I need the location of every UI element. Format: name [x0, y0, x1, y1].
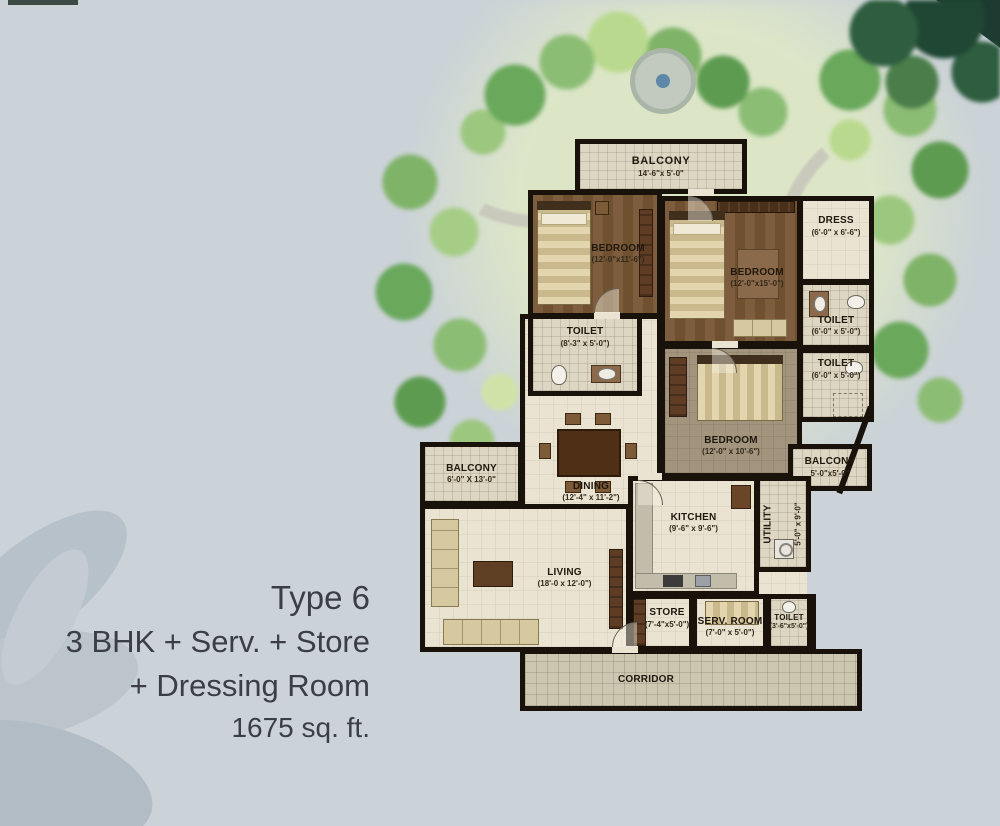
bed-icon: [697, 355, 783, 421]
room-dims: 14'-6"x 5'-0": [638, 169, 684, 179]
chair-icon: [565, 413, 581, 425]
room-label: BEDROOM: [704, 435, 758, 448]
room-serv: SERV. ROOM (7'-0" x 5'-0"): [692, 594, 768, 651]
door-gap: [638, 473, 662, 480]
room-label: TOILET: [774, 613, 804, 623]
room-dims: (6'-0" x 6'-6"): [812, 228, 861, 238]
room-toilet-dress: TOILET (6'-0" x 5'-0"): [798, 280, 874, 350]
room-dims: 6'-0" X 13'-0": [447, 475, 496, 485]
plan-config-line2: + Dressing Room: [60, 664, 370, 708]
room-label: BEDROOM: [591, 243, 645, 256]
sink-icon: [695, 575, 711, 587]
room-dims: (12'-4" x 11'-2"): [562, 493, 619, 503]
room-dims: (7'-0" x 5'-0"): [706, 628, 755, 638]
room-dims: (12'-0" x 10'-6"): [702, 447, 760, 457]
coffee-table-icon: [473, 561, 513, 587]
rug-icon: [737, 249, 779, 299]
room-dress: DRESS (6'-0" x 6'-6"): [798, 196, 874, 284]
door-gap: [712, 341, 738, 348]
sofa-icon: [443, 619, 539, 645]
room-label: KITCHEN: [671, 512, 717, 525]
bed-icon: [537, 201, 591, 305]
room-dims: (12'-0"x11'-6"): [592, 255, 645, 265]
door-gap: [688, 189, 714, 196]
dining-table-icon: [557, 429, 621, 477]
tv-unit-icon: [609, 549, 623, 629]
chair-icon: [595, 481, 611, 493]
room-dims: (7'-4"x5'-0"): [645, 620, 689, 630]
room-toilet-right: TOILET (6'-0" x 5'-0"): [798, 348, 874, 422]
fridge-icon: [731, 485, 751, 509]
room-label: BALCONY: [446, 463, 497, 476]
room-corridor: CORRIDOR: [520, 649, 862, 711]
chair-icon: [565, 481, 581, 493]
floor-plan-page: BALCONY 14'-6"x 5'-0" DINING (12'-4" x 1…: [0, 0, 1000, 826]
door-gap: [594, 312, 620, 319]
washbasin-icon: [591, 365, 621, 383]
room-dims: (8'-3" x 5'-0"): [561, 339, 610, 349]
sofa-icon: [733, 319, 787, 337]
washbasin-icon: [809, 291, 829, 317]
wall-stub: [808, 594, 816, 651]
room-label: DRESS: [818, 215, 853, 228]
room-dims: (18'-0 x 12'-0"): [538, 579, 592, 589]
room-dims: 5'-0" x 9'-0": [793, 502, 803, 545]
nightstand-icon: [595, 201, 609, 215]
room-utility: UTILITY 5'-0" x 9'-0": [755, 476, 811, 572]
bed-icon: [705, 601, 759, 625]
room-dims: (3'-6"x5'-0"): [770, 623, 809, 631]
room-label: STORE: [649, 607, 684, 620]
toilet-icon: [782, 601, 796, 613]
plan-config-line: 3 BHK + Serv. + Store: [60, 620, 370, 664]
room-label: TOILET: [567, 326, 604, 339]
room-label: LIVING: [547, 567, 582, 580]
plan-title-block: Type 6 3 BHK + Serv. + Store + Dressing …: [60, 576, 370, 748]
plan-area: 1675 sq. ft.: [60, 708, 370, 748]
chair-icon: [595, 413, 611, 425]
chair-icon: [539, 443, 551, 459]
shower-icon: [833, 393, 863, 417]
room-label: CORRIDOR: [618, 674, 674, 687]
room-bedroom-1: BEDROOM (12'-0"x11'-6"): [528, 190, 662, 318]
sofa-icon: [431, 519, 459, 607]
wardrobe-icon: [639, 209, 653, 297]
room-living: LIVING (18'-0 x 12'-0"): [420, 504, 631, 652]
room-balcony-top: BALCONY 14'-6"x 5'-0": [575, 139, 747, 194]
wardrobe-icon: [669, 357, 687, 417]
toilet-icon: [845, 361, 863, 375]
bed-icon: [669, 211, 725, 319]
stove-icon: [663, 575, 683, 587]
room-toilet-left: TOILET (8'-3" x 5'-0"): [528, 314, 642, 396]
room-label: BALCONY: [632, 155, 691, 169]
room-store: STORE (7'-4"x5'-0"): [628, 594, 694, 651]
plan-type-title: Type 6: [60, 576, 370, 620]
door-gap: [612, 646, 638, 653]
kitchen-counter-icon: [635, 573, 737, 589]
washing-machine-icon: [774, 539, 794, 559]
room-dims: (6'-0" x 5'-0"): [812, 327, 861, 337]
room-bedroom-2: BEDROOM (12'-0"x15'-0"): [660, 196, 802, 346]
room-dims: (9'-6" x 9'-6"): [669, 524, 718, 534]
toilet-icon: [551, 365, 567, 385]
wardrobe-icon: [717, 201, 795, 213]
chair-icon: [625, 443, 637, 459]
toilet-icon: [847, 295, 865, 309]
room-balcony-left: BALCONY 6'-0" X 13'-0": [420, 442, 523, 506]
room-toilet-serv: TOILET (3'-6"x5'-0"): [766, 594, 812, 651]
